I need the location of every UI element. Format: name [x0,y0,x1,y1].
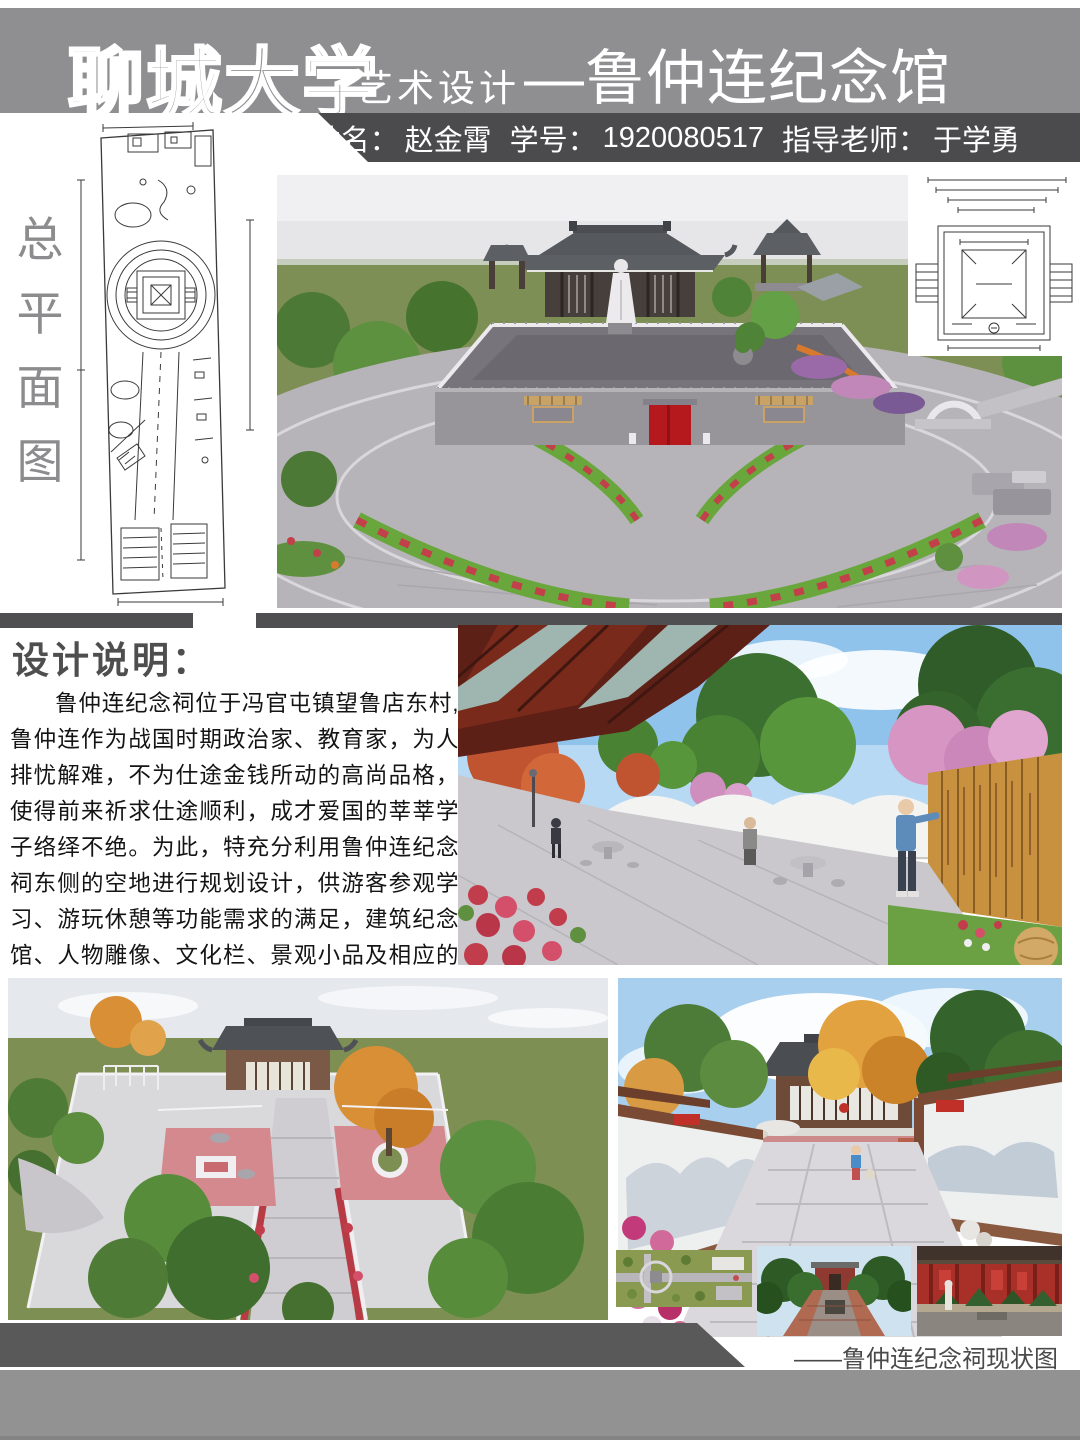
student-id-label: 学号： [510,117,597,159]
plan-label-char: 平 [17,290,64,337]
advisor-value: 于学勇 [933,117,1020,159]
name-value: 赵金霄 [405,117,492,159]
status-photo-temple [917,1246,1062,1336]
figure-seated [743,817,757,865]
status-caption: ——鲁仲连纪念祠现状图 [680,1339,1058,1374]
plan-label-char: 图 [17,438,64,485]
site-plan-drawing [73,120,258,608]
student-id-value: 1920080517 [603,122,764,155]
building-plan-panel [908,168,1080,356]
design-note-title: 设计说明： [12,630,212,684]
advisor-label: 指导老师： [782,117,927,159]
poster-canvas: 聊城大学 艺术设计 —鲁仲连纪念馆 姓名：赵金霄 学号：1920080517 指… [0,0,1080,1440]
divider-bar-left [0,613,193,628]
design-note-body: 鲁仲连纪念祠位于冯官屯镇望鲁店东村,鲁仲连作为战国时期政治家、教育家，为人排忧解… [10,686,459,1010]
garden-aerial-render-image [8,978,608,1320]
department-title: 艺术设计 [356,58,520,112]
plan-label-char: 总 [17,216,64,263]
name-label: 姓名： [312,117,399,159]
project-title: —鲁仲连纪念馆 [524,30,951,117]
status-plan-thumbnail [616,1250,752,1307]
plan-label-char: 面 [17,364,64,411]
master-plan-label: 总 平 面 图 [12,216,68,512]
courtyard-render-image [458,625,1062,965]
footer-edge-line [0,1436,1080,1440]
author-info-row: 姓名：赵金霄 学号：1920080517 指导老师：于学勇 [420,120,1020,156]
status-photo-courtyard [757,1246,911,1336]
footer-band [0,1370,1080,1440]
